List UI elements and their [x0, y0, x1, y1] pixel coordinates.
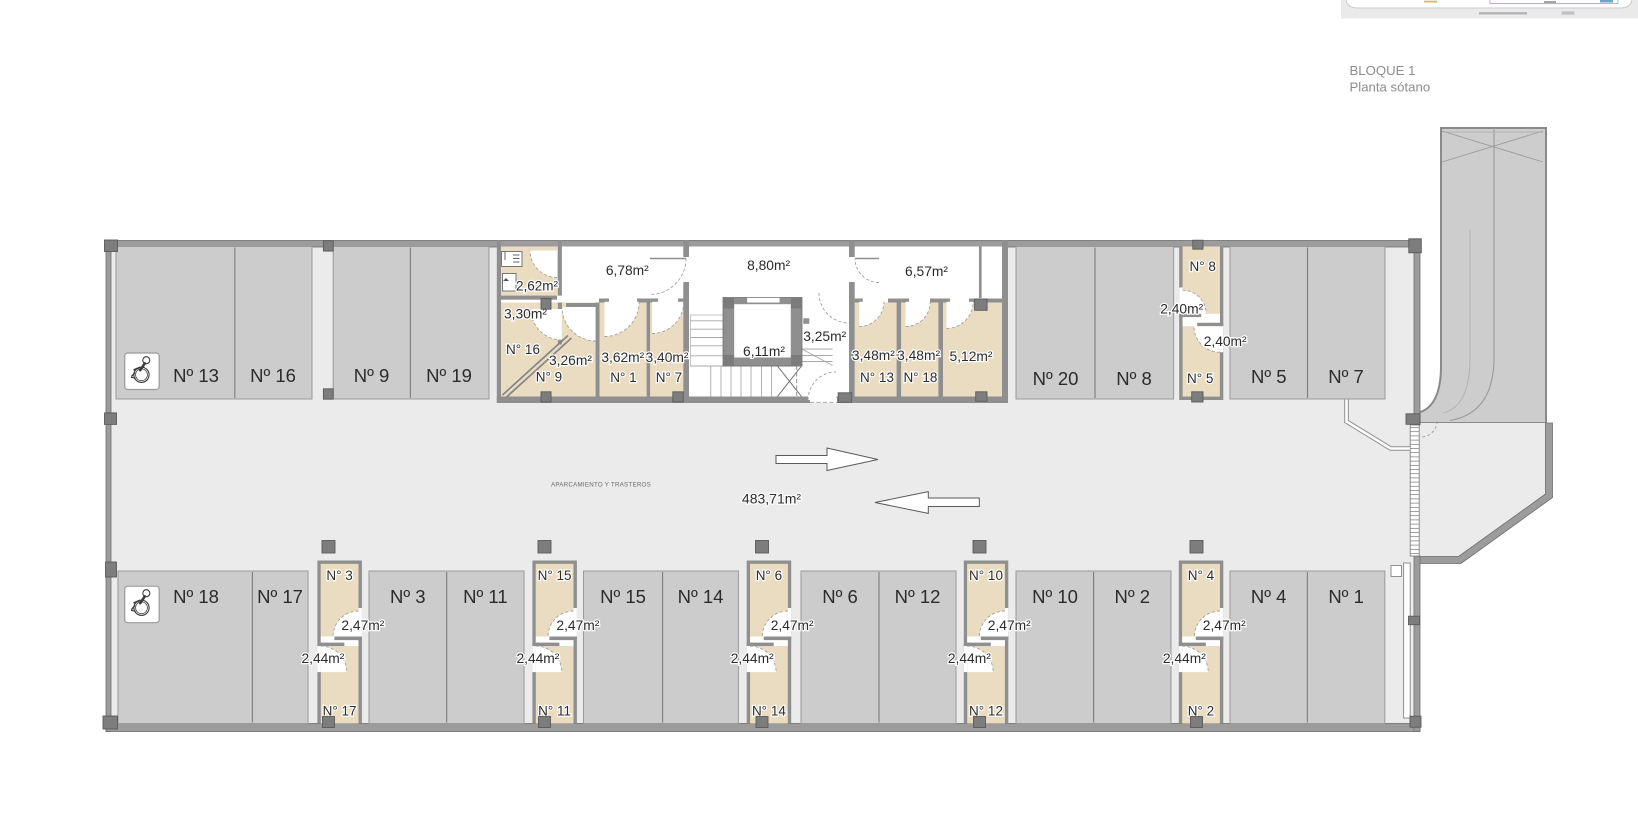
svg-text:N° 9: N° 9	[536, 370, 562, 385]
svg-text:3,62m²: 3,62m²	[601, 350, 644, 365]
svg-text:Nº 18: Nº 18	[173, 586, 219, 607]
svg-text:2,47m²: 2,47m²	[988, 618, 1031, 633]
svg-text:5,12m²: 5,12m²	[950, 349, 993, 364]
svg-text:N° 13: N° 13	[860, 370, 894, 385]
svg-text:Nº 17: Nº 17	[257, 586, 303, 607]
svg-text:N° 10: N° 10	[969, 568, 1003, 583]
svg-text:Nº 15: Nº 15	[600, 586, 646, 607]
svg-text:2,47m²: 2,47m²	[341, 618, 384, 633]
svg-text:Nº 13: Nº 13	[173, 365, 219, 386]
svg-text:N° 18: N° 18	[903, 370, 937, 385]
svg-text:N° 7: N° 7	[656, 370, 682, 385]
svg-text:Nº 16: Nº 16	[250, 365, 296, 386]
svg-text:N° 8: N° 8	[1189, 259, 1215, 274]
svg-text:Nº 12: Nº 12	[895, 586, 941, 607]
svg-text:Nº 14: Nº 14	[678, 586, 724, 607]
svg-text:2,47m²: 2,47m²	[771, 618, 814, 633]
svg-text:Nº 2: Nº 2	[1115, 586, 1151, 607]
svg-text:8,80m²: 8,80m²	[747, 258, 790, 273]
svg-text:Nº 1: Nº 1	[1328, 586, 1364, 607]
svg-text:483,71m²: 483,71m²	[742, 491, 801, 507]
svg-text:Planta sótano: Planta sótano	[1350, 80, 1431, 95]
svg-text:3,40m²: 3,40m²	[646, 350, 689, 365]
svg-text:N° 5: N° 5	[1187, 371, 1213, 386]
svg-text:2,44m²: 2,44m²	[301, 651, 344, 666]
svg-text:Nº 11: Nº 11	[463, 586, 507, 607]
svg-text:Nº 7: Nº 7	[1328, 366, 1364, 387]
svg-text:N° 6: N° 6	[756, 568, 782, 583]
svg-text:Nº 5: Nº 5	[1251, 366, 1287, 387]
svg-text:Nº 10: Nº 10	[1032, 586, 1078, 607]
svg-text:N° 16: N° 16	[506, 342, 540, 357]
svg-text:3,48m²: 3,48m²	[897, 348, 940, 363]
svg-text:6,78m²: 6,78m²	[606, 263, 649, 278]
svg-text:2,44m²: 2,44m²	[1163, 651, 1206, 666]
svg-text:2,47m²: 2,47m²	[1203, 618, 1246, 633]
svg-text:3,26m²: 3,26m²	[549, 353, 592, 368]
svg-text:6,11m²: 6,11m²	[743, 344, 785, 359]
svg-text:APARCAMIENTO Y TRASTEROS: APARCAMIENTO Y TRASTEROS	[551, 482, 651, 489]
svg-text:N° 1: N° 1	[610, 370, 636, 385]
svg-text:N° 3: N° 3	[326, 568, 352, 583]
svg-text:Nº 8: Nº 8	[1116, 368, 1152, 389]
svg-text:2,40m²: 2,40m²	[1204, 334, 1247, 349]
svg-text:Nº 3: Nº 3	[390, 586, 426, 607]
svg-text:6,57m²: 6,57m²	[905, 264, 948, 279]
svg-text:N° 15: N° 15	[538, 568, 572, 583]
svg-text:2,44m²: 2,44m²	[731, 651, 774, 666]
svg-text:Nº 9: Nº 9	[354, 365, 390, 386]
svg-text:Nº 6: Nº 6	[822, 586, 858, 607]
svg-text:Nº 20: Nº 20	[1033, 368, 1079, 389]
svg-text:2,47m²: 2,47m²	[556, 618, 599, 633]
svg-text:Nº 19: Nº 19	[426, 365, 472, 386]
svg-text:3,25m²: 3,25m²	[803, 329, 846, 344]
svg-text:BLOQUE 1: BLOQUE 1	[1350, 63, 1416, 78]
svg-text:2,40m²: 2,40m²	[1160, 302, 1203, 317]
svg-text:2,44m²: 2,44m²	[516, 651, 559, 666]
svg-text:N° 4: N° 4	[1188, 568, 1215, 583]
svg-text:2,62m²: 2,62m²	[516, 279, 559, 294]
svg-text:Nº 4: Nº 4	[1251, 586, 1287, 607]
svg-text:3,48m²: 3,48m²	[852, 348, 895, 363]
svg-text:2,44m²: 2,44m²	[948, 651, 991, 666]
